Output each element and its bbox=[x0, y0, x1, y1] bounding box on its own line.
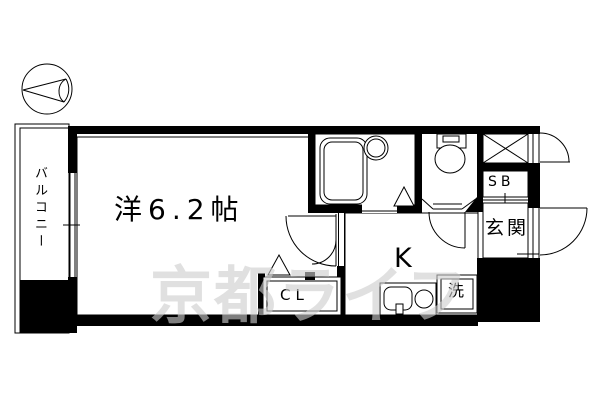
wall-bottom-right-mass bbox=[477, 258, 540, 322]
wall-under-storage bbox=[483, 163, 528, 171]
balcony-label: バルコニー bbox=[33, 166, 46, 251]
floor-plan-drawing bbox=[0, 0, 600, 400]
shoe-box-label: SB bbox=[488, 175, 515, 189]
wall-toilet-right bbox=[477, 134, 483, 204]
toilet-bowl bbox=[435, 145, 465, 173]
bath-sink-inner bbox=[367, 139, 385, 157]
entrance-door-arc bbox=[540, 208, 587, 255]
bathtub-inner bbox=[324, 142, 363, 200]
toilet-tank-lid bbox=[443, 136, 459, 142]
wall-right-sb bbox=[528, 163, 540, 208]
storage-door-arc bbox=[540, 133, 569, 162]
floor-plan: バルコニー 洋6.2帖 K CL SB 玄関 洗 京都ライフ bbox=[0, 0, 600, 400]
watermark: 京都ライフ bbox=[150, 262, 470, 330]
room-label: 洋6.2帖 bbox=[114, 196, 245, 224]
wall-top bbox=[68, 126, 540, 134]
entrance-label: 玄関 bbox=[485, 219, 529, 238]
bathroom-door-gap bbox=[362, 204, 397, 213]
wall-left-upper bbox=[68, 126, 77, 173]
compass-icon bbox=[22, 64, 72, 114]
